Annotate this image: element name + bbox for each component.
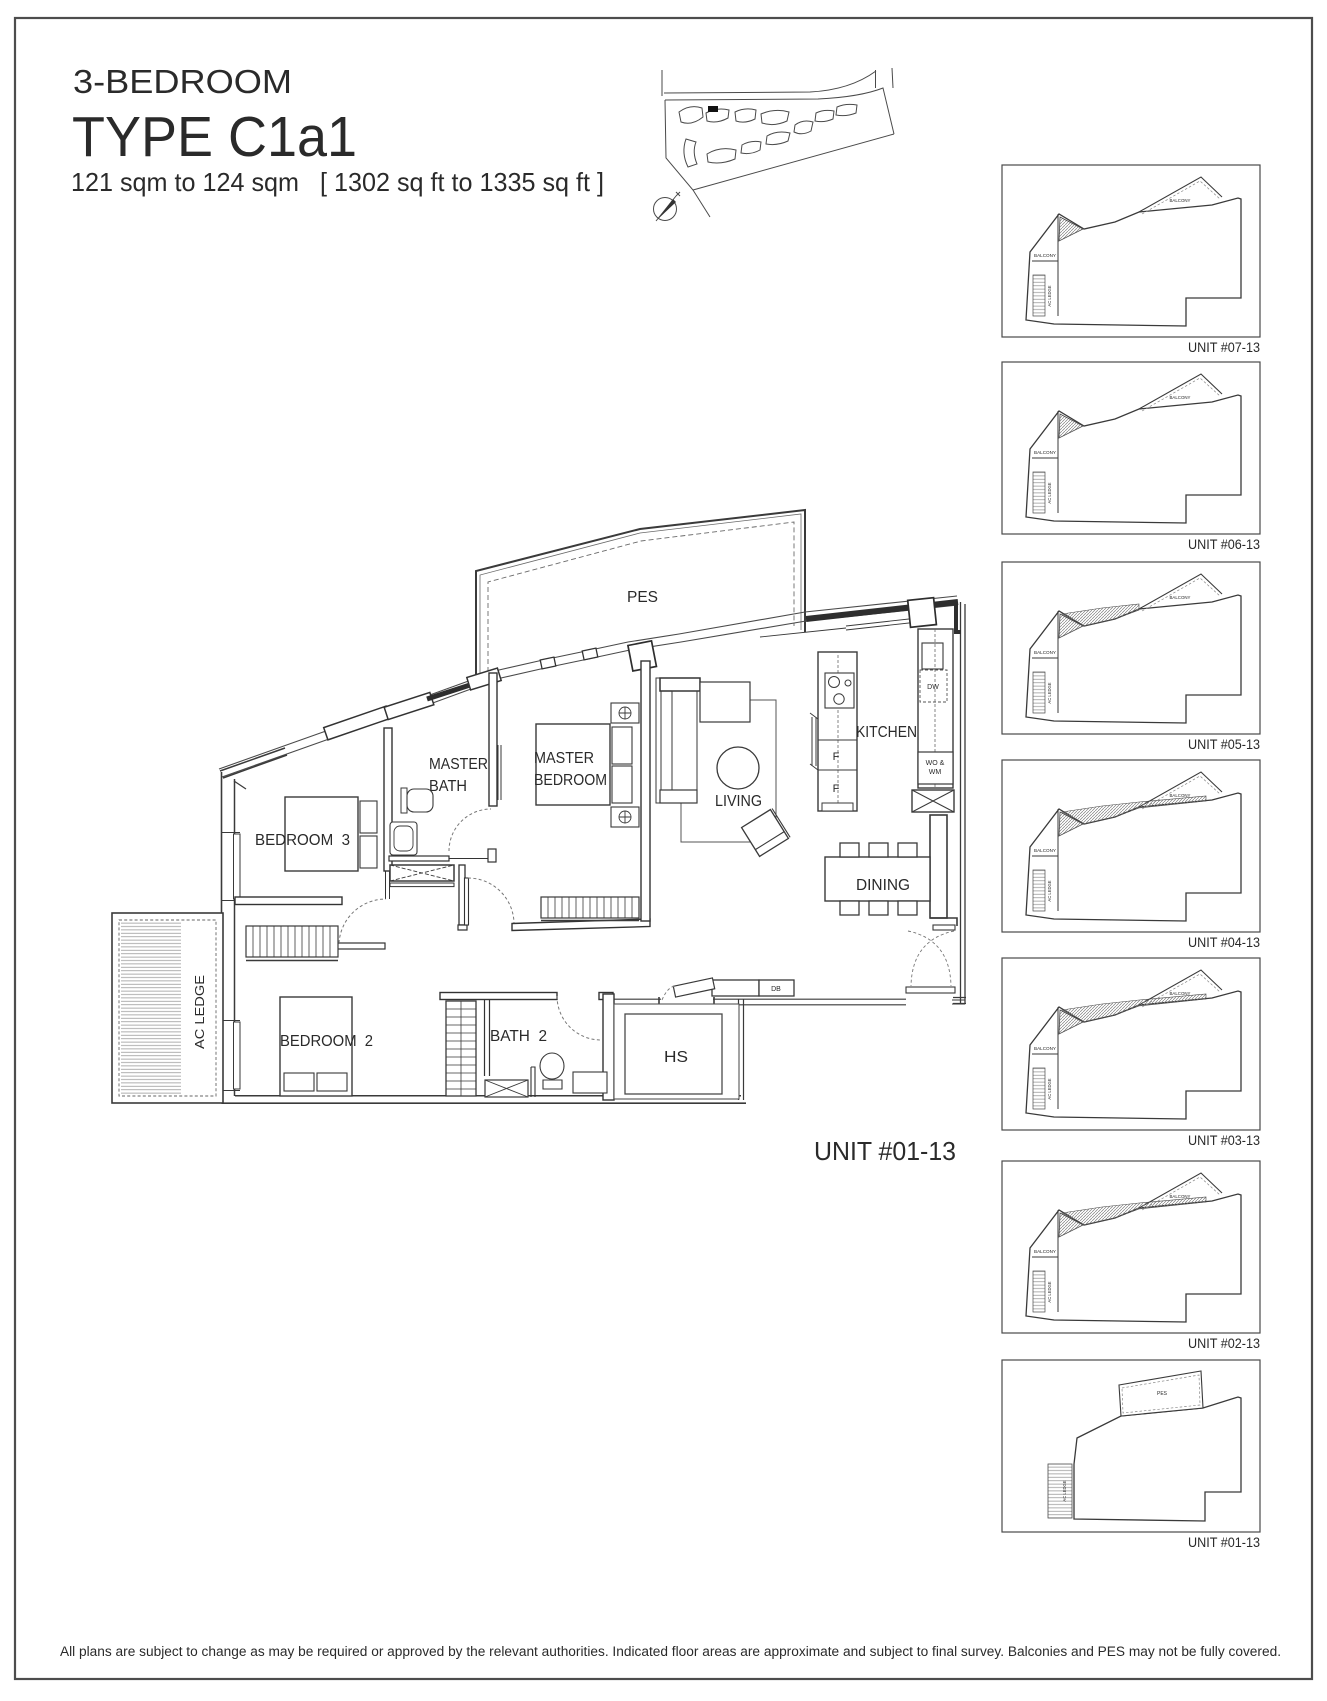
svg-text:BATH 2: BATH 2 [490,1028,547,1045]
svg-text:KITCHEN: KITCHEN [856,724,917,741]
svg-text:121 sqm to 124 sqm [ 1302 sq: 121 sqm to 124 sqm [ 1302 sq ft to 1335 … [71,167,604,197]
svg-text:All plans are subject to chang: All plans are subject to change as may b… [60,1644,1281,1659]
svg-text:DB: DB [771,986,781,993]
svg-text:MASTER: MASTER [429,756,488,773]
svg-text:F: F [833,783,840,795]
svg-text:UNIT #05-13: UNIT #05-13 [1188,737,1260,752]
svg-text:UNIT #07-13: UNIT #07-13 [1188,340,1260,355]
svg-text:UNIT #06-13: UNIT #06-13 [1188,537,1260,552]
svg-text:WO &: WO & [926,760,945,767]
svg-text:3-BEDROOM: 3-BEDROOM [73,63,292,100]
svg-text:WM: WM [929,769,942,776]
svg-text:UNIT #03-13: UNIT #03-13 [1188,1133,1260,1148]
svg-text:BATH: BATH [429,778,467,795]
svg-text:UNIT #01-13: UNIT #01-13 [814,1136,956,1166]
svg-text:UNIT #01-13: UNIT #01-13 [1188,1535,1260,1550]
svg-text:LIVING: LIVING [715,793,762,810]
svg-text:TYPE C1a1: TYPE C1a1 [72,105,357,169]
svg-text:HS: HS [664,1049,688,1066]
svg-text:DW: DW [927,684,939,691]
svg-text:UNIT #02-13: UNIT #02-13 [1188,1336,1260,1351]
svg-text:PES: PES [627,589,658,606]
svg-text:UNIT #04-13: UNIT #04-13 [1188,935,1260,950]
svg-text:MASTER: MASTER [534,750,594,767]
svg-text:BEDROOM: BEDROOM [534,772,607,789]
svg-text:F: F [833,751,840,763]
svg-text:DINING: DINING [856,877,910,894]
svg-text:BEDROOM 3: BEDROOM 3 [255,832,350,849]
svg-text:BEDROOM 2: BEDROOM 2 [280,1033,373,1050]
svg-text:AC LEDGE: AC LEDGE [193,975,207,1049]
